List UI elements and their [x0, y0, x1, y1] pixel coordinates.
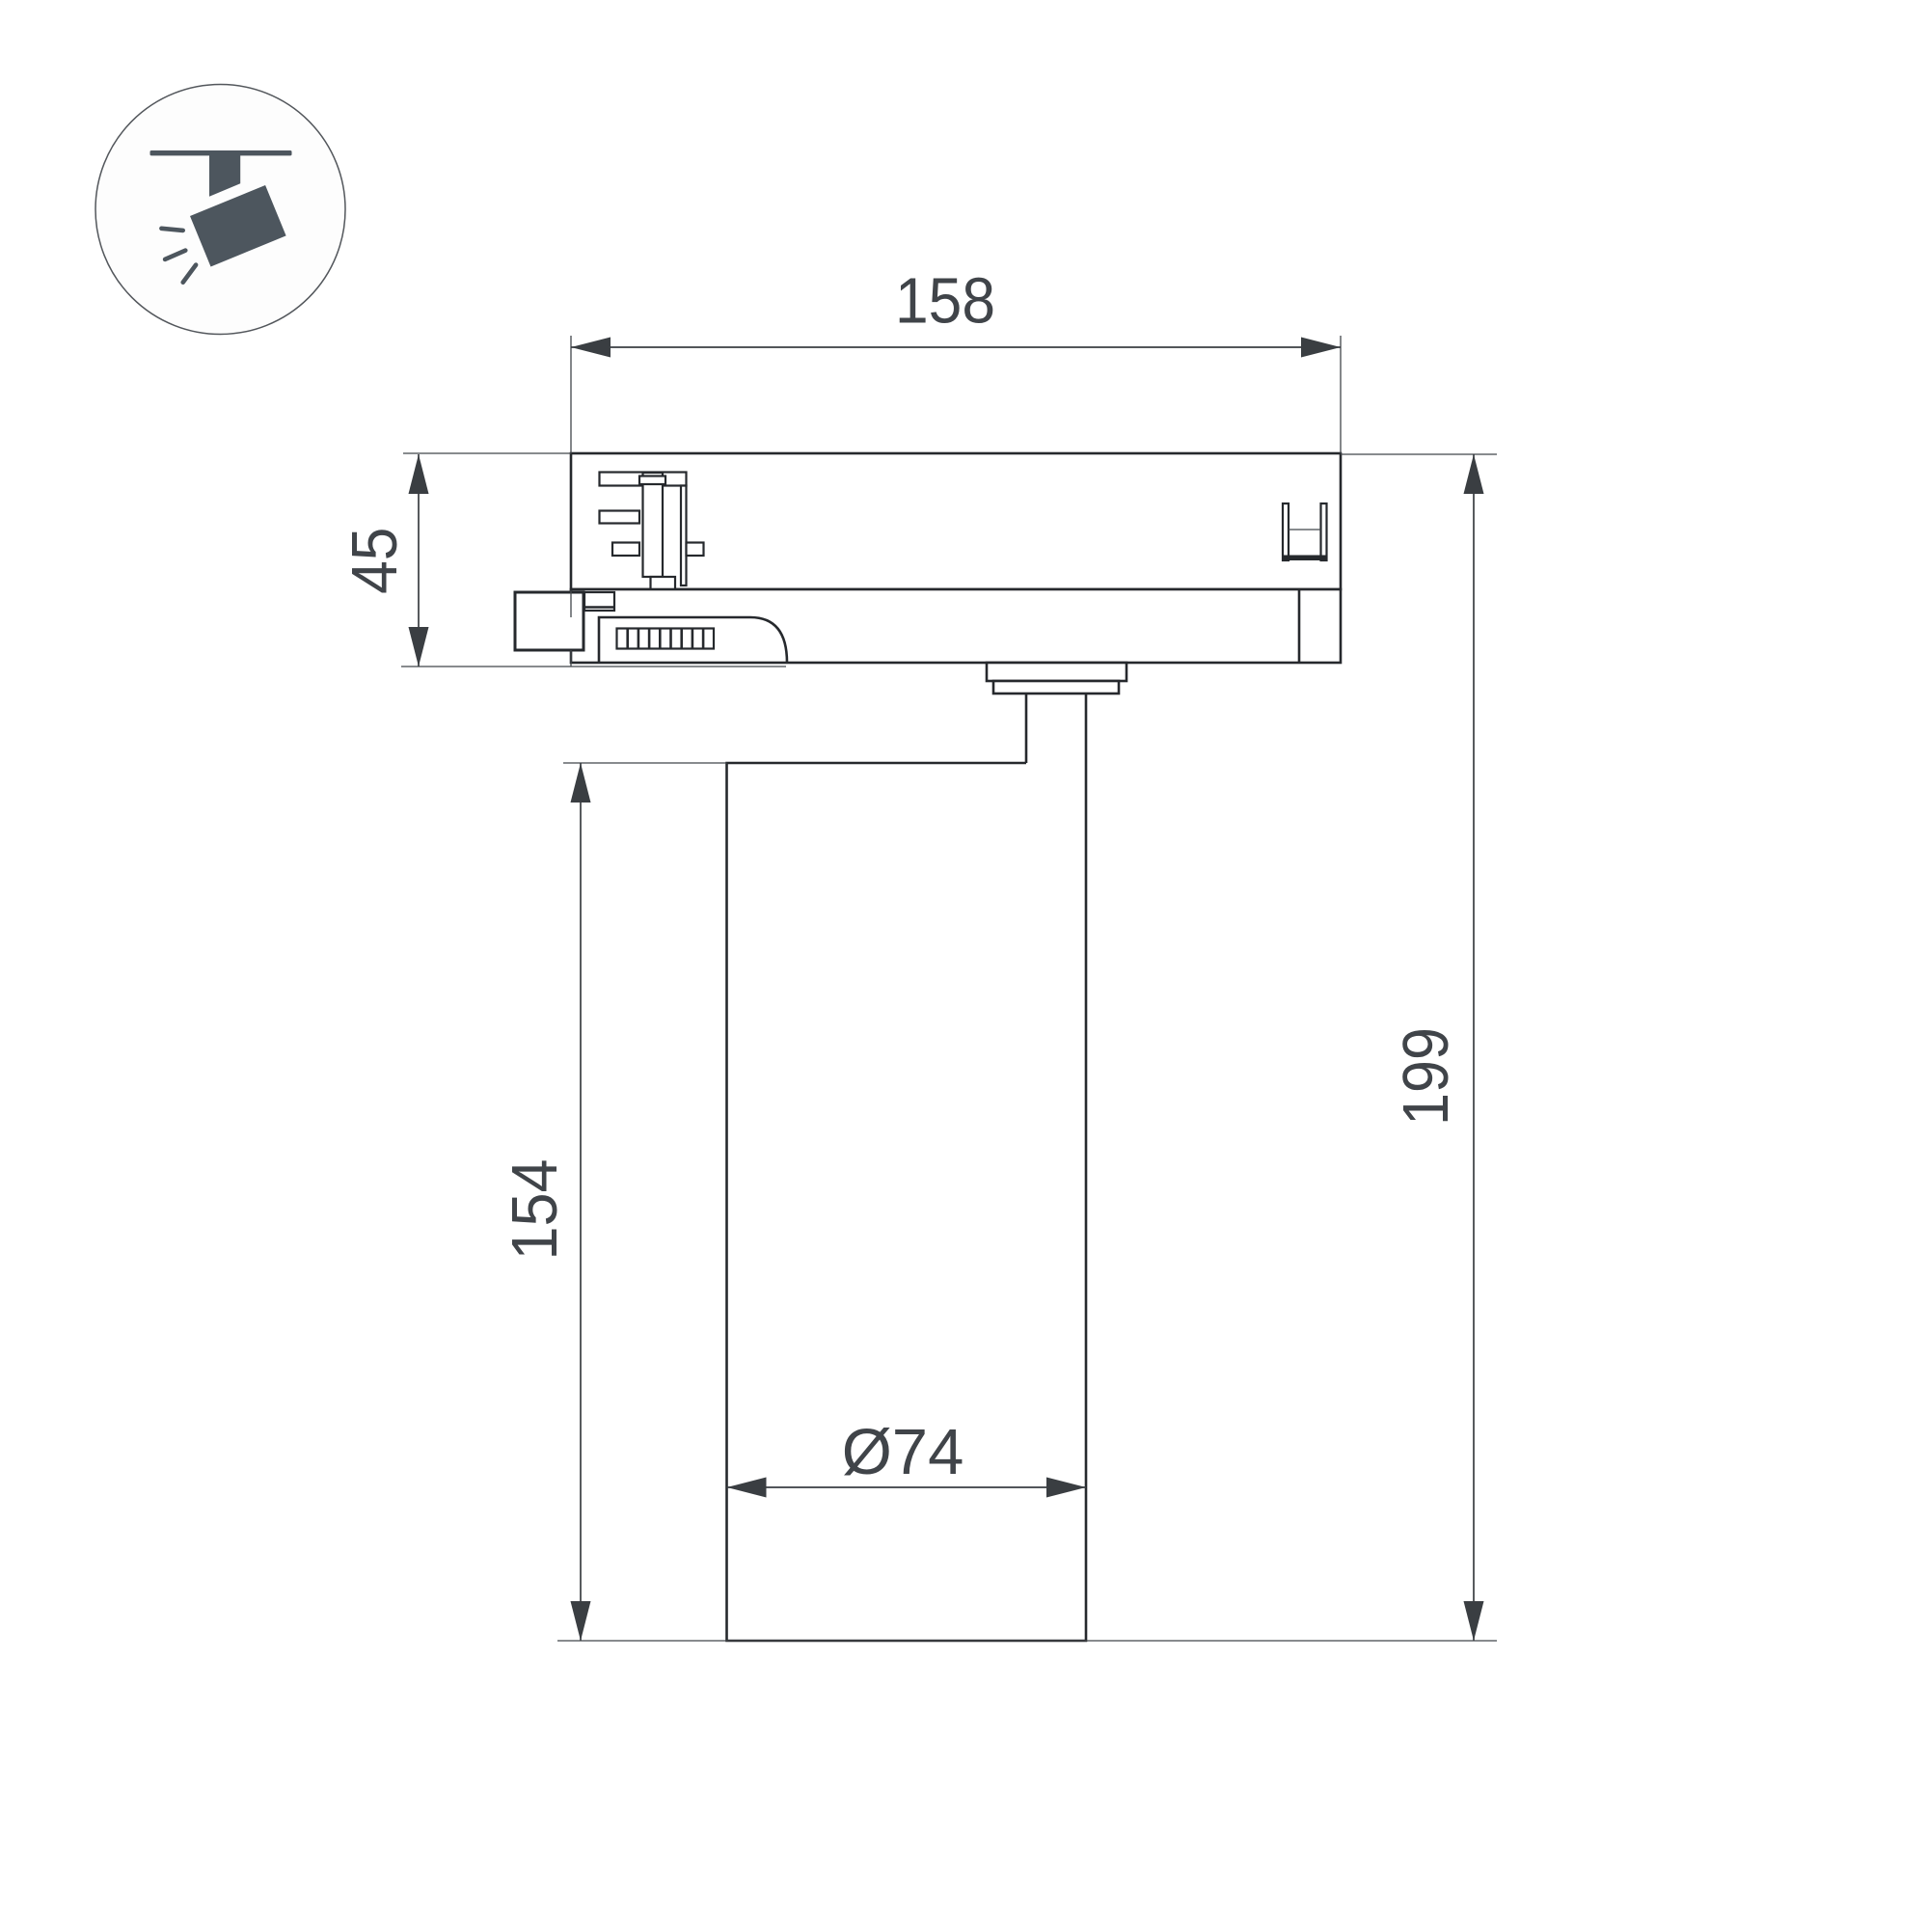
svg-text:158: 158	[895, 263, 995, 337]
svg-text:Ø74: Ø74	[842, 1416, 964, 1488]
svg-text:199: 199	[1389, 1027, 1461, 1126]
svg-text:154: 154	[498, 1158, 570, 1260]
svg-text:45: 45	[338, 528, 411, 594]
